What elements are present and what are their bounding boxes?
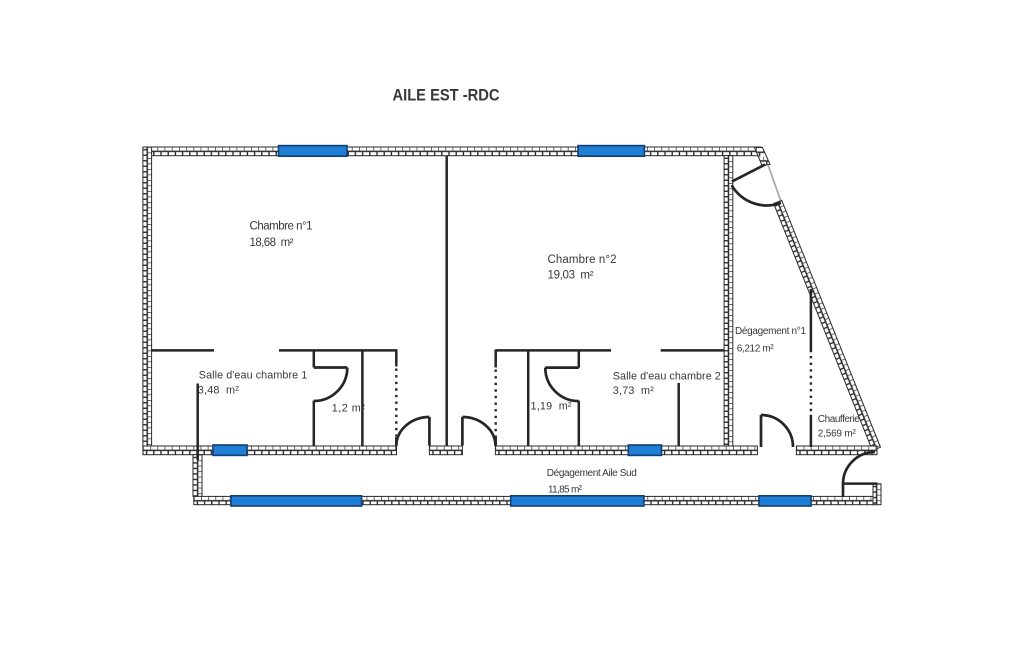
svg-text:AILE EST -RDC: AILE EST -RDC (393, 87, 500, 105)
svg-text:Dégagement n°1: Dégagement n°1 (735, 326, 806, 337)
svg-text:2,569 m²: 2,569 m² (818, 428, 857, 439)
svg-text:Salle d'eau chambre 1: Salle d'eau chambre 1 (199, 370, 307, 382)
svg-text:Salle d'eau chambre 2: Salle d'eau chambre 2 (613, 370, 721, 382)
svg-text:Dégagement Aile Sud: Dégagement Aile Sud (547, 468, 637, 479)
svg-text:Chambre n°1: Chambre n°1 (250, 220, 313, 232)
svg-text:18,68 m²: 18,68 m² (250, 237, 294, 249)
svg-text:1,2 m²: 1,2 m² (332, 402, 365, 414)
svg-text:6,212 m²: 6,212 m² (737, 343, 775, 354)
svg-text:3,73 m²: 3,73 m² (613, 385, 654, 397)
svg-text:Chambre n°2: Chambre n°2 (548, 254, 617, 266)
svg-text:Chaufferie: Chaufferie (818, 414, 860, 425)
svg-text:3,48 m²: 3,48 m² (198, 384, 239, 396)
svg-text:1,19 m²: 1,19 m² (531, 401, 572, 413)
svg-text:19,03 m²: 19,03 m² (548, 270, 594, 282)
svg-text:11,85 m²: 11,85 m² (548, 485, 583, 496)
